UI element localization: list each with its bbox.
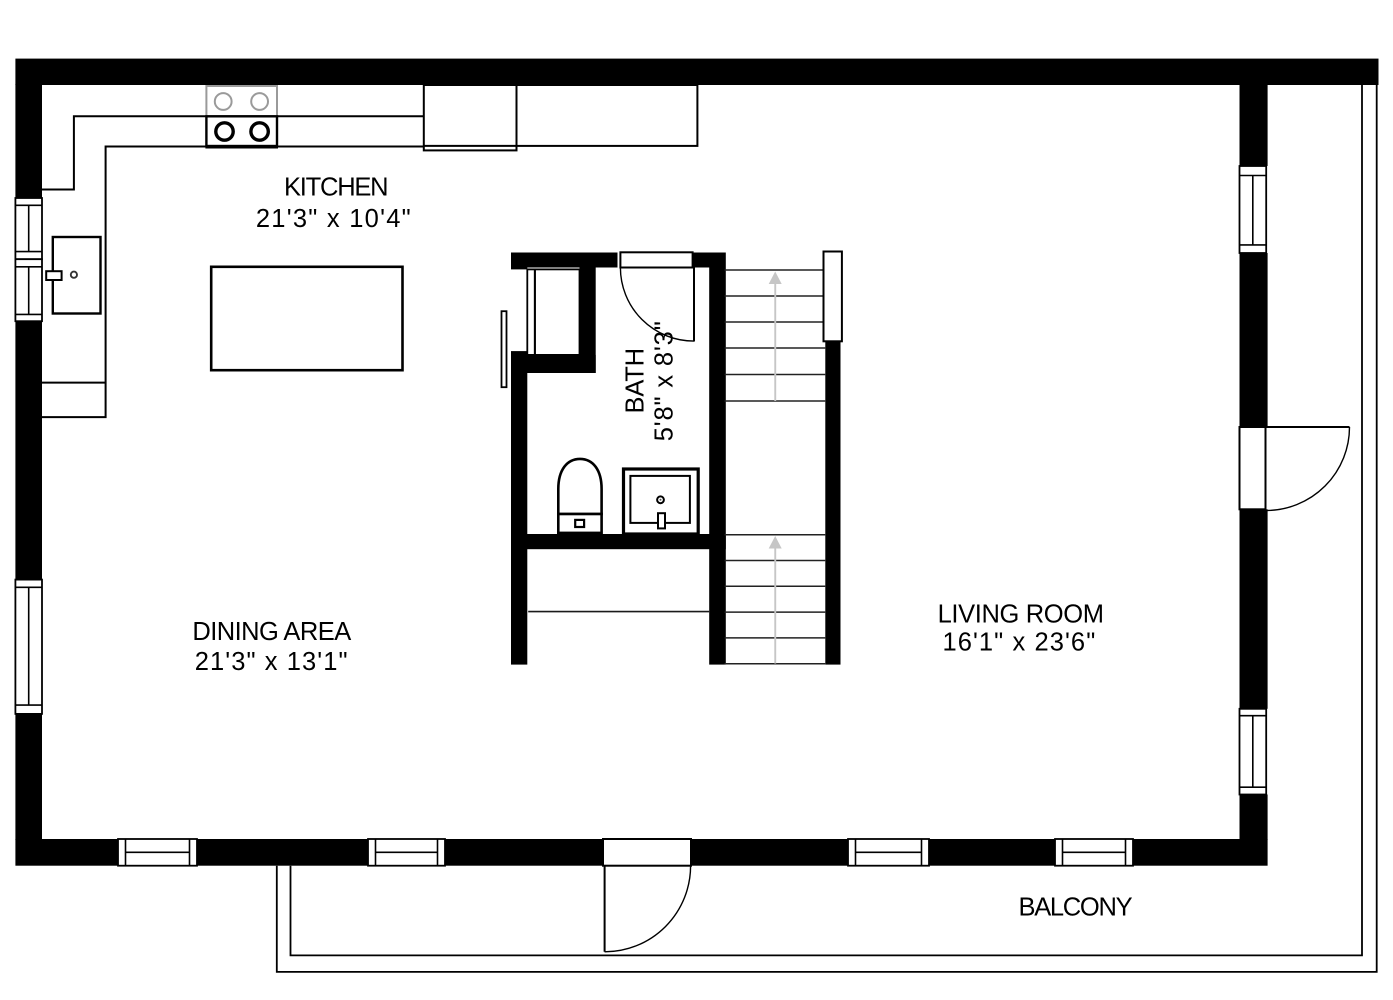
svg-text:21'3" x 10'4": 21'3" x 10'4": [256, 205, 412, 233]
svg-text:LIVING ROOM: LIVING ROOM: [938, 601, 1104, 629]
svg-text:16'1" x 23'6": 16'1" x 23'6": [942, 629, 1096, 657]
svg-text:DINING AREA: DINING AREA: [192, 618, 351, 646]
svg-text:BATH: BATH: [621, 348, 649, 413]
svg-text:21'3" x 13'1": 21'3" x 13'1": [195, 648, 349, 676]
svg-text:5'8" x 8'3": 5'8" x 8'3": [651, 320, 679, 441]
svg-text:KITCHEN: KITCHEN: [284, 174, 387, 202]
svg-text:BALCONY: BALCONY: [1019, 893, 1133, 921]
